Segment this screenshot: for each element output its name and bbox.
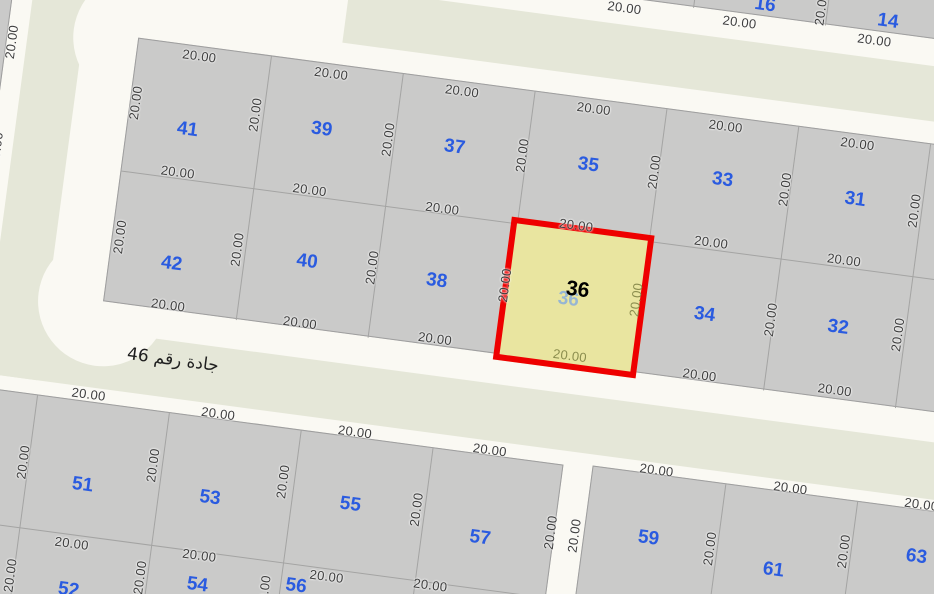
dimension-label: 20.00 [0,131,6,167]
parcel-label-16[interactable]: 16 [753,0,777,18]
cadastral-map-canvas: جادة رقم 46 4139373533314240383432161451… [0,0,934,594]
parcel-label-63[interactable]: 63 [904,545,928,570]
parcel-label-52[interactable]: 52 [57,578,81,594]
parcel-label-51[interactable]: 51 [71,473,95,498]
parcel-label-55[interactable]: 55 [338,492,362,517]
parcel-label-31[interactable]: 31 [843,188,867,213]
dimension-label: 20.00 [282,313,318,332]
parcel-label-35[interactable]: 35 [576,153,600,178]
parcel-label-40[interactable]: 40 [295,250,319,275]
parcel-label-34[interactable]: 34 [693,303,717,328]
parcel-boundary-line [693,0,712,8]
parcel-label-57[interactable]: 57 [468,526,492,551]
parcel-label-36[interactable]: 36 [565,277,591,304]
parcel-label-33[interactable]: 33 [711,168,735,193]
parcel-label-37[interactable]: 37 [443,135,467,160]
dimension-label: 20.00 [417,329,453,348]
parcel-label-42[interactable]: 42 [160,252,184,277]
parcel-label-56[interactable]: 56 [284,574,308,594]
parcel-label-39[interactable]: 39 [310,117,334,142]
parcel-label-59[interactable]: 59 [637,526,661,551]
parcel-label-61[interactable]: 61 [761,558,785,583]
parcel-label-14[interactable]: 14 [876,9,900,34]
dimension-label: 20.00 [541,515,560,551]
dimension-label: 20.00 [722,12,758,31]
parcel-label-32[interactable]: 32 [826,315,850,340]
parcel-boundary-line [257,431,302,594]
parcel-label-53[interactable]: 53 [198,486,222,511]
dimension-label: 20.00 [682,365,718,384]
dimension-label: 20.00 [857,30,893,49]
dimension-label: 20.00 [2,24,21,60]
parcel-label-41[interactable]: 41 [176,118,200,143]
parcel-label-38[interactable]: 38 [425,269,449,294]
dimension-label: 20.00 [607,0,643,17]
parcel-label-54[interactable]: 54 [185,573,209,594]
